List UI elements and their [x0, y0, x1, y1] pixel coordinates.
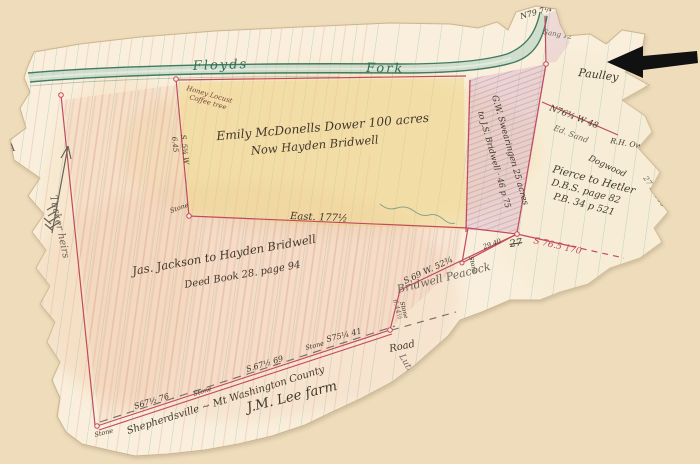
stream-label-floyds: Floyds — [192, 57, 249, 74]
scanned-plat-map: Floyds Fork Emily McDonells Dower 100 ac… — [0, 0, 700, 464]
mark-27: 27 — [508, 237, 524, 250]
plat-svg: Floyds Fork Emily McDonells Dower 100 ac… — [0, 0, 700, 464]
distance-645: 6.45 — [170, 136, 180, 153]
stream-label-fork: Fork — [365, 61, 404, 77]
